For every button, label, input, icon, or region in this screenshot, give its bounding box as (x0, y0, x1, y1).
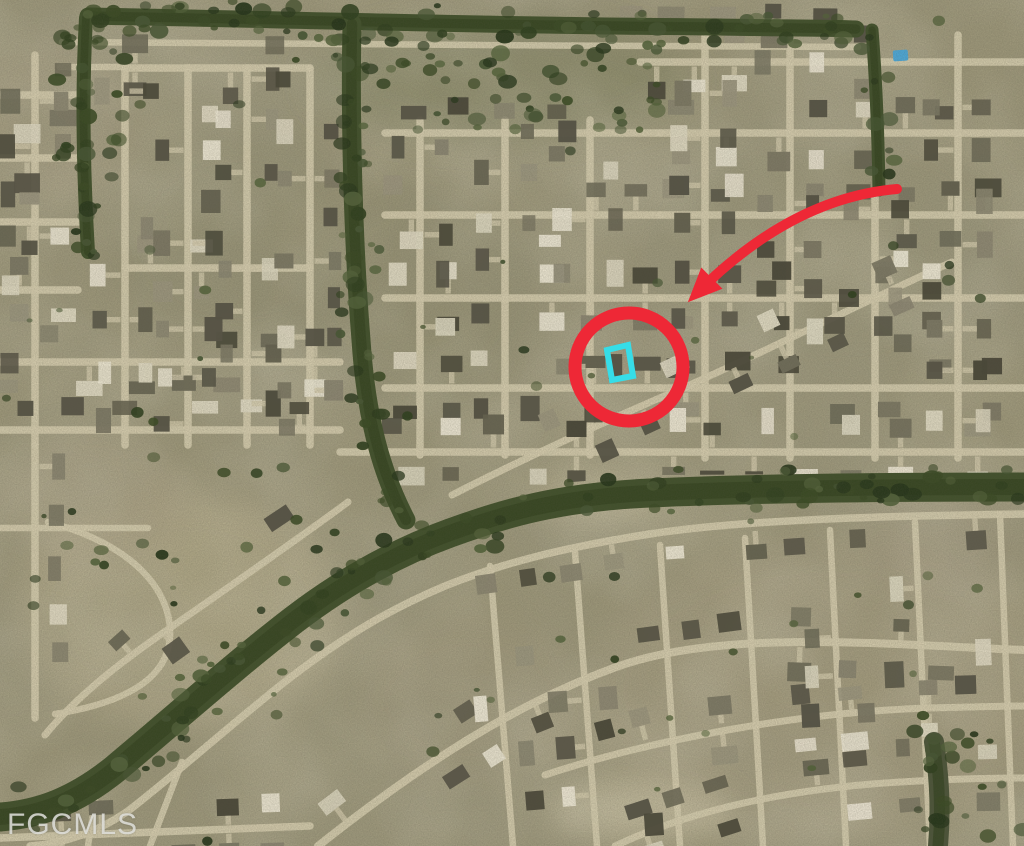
fgcmls-watermark: FGCMLS (7, 808, 138, 842)
listing-map-figure: FGCMLS (0, 0, 1024, 846)
image-grain (0, 0, 1024, 846)
satellite-map (0, 0, 1024, 846)
